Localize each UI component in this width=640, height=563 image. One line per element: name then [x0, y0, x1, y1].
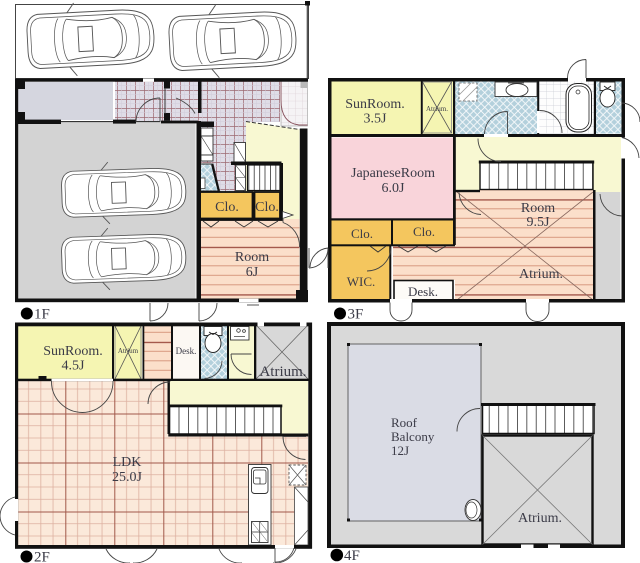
svg-text:Desk.: Desk. [176, 346, 197, 356]
svg-text:SunRoom.: SunRoom. [345, 97, 405, 112]
svg-text:4.5J: 4.5J [62, 359, 86, 374]
svg-text:1F: 1F [34, 307, 50, 323]
svg-text:WIC.: WIC. [347, 274, 376, 289]
svg-text:3F: 3F [348, 307, 364, 323]
svg-text:3.5J: 3.5J [364, 112, 388, 127]
svg-text:JapaneseRoom: JapaneseRoom [351, 166, 435, 181]
svg-text:Atrium.: Atrium. [259, 364, 306, 380]
svg-text:6J: 6J [246, 265, 259, 280]
svg-text:Atrium.: Atrium. [518, 511, 562, 526]
svg-text:Clo.: Clo. [413, 224, 435, 239]
svg-text:Atrium.: Atrium. [426, 105, 448, 113]
svg-text:Roof: Roof [391, 415, 418, 430]
svg-text:Room: Room [235, 250, 269, 265]
svg-text:Balcony: Balcony [391, 429, 435, 444]
svg-text:Clo.: Clo. [215, 200, 239, 215]
svg-text:9.5J: 9.5J [527, 215, 551, 230]
svg-text:Clo.: Clo. [351, 226, 373, 241]
svg-text:SunRoom.: SunRoom. [43, 344, 103, 359]
svg-text:Desk.: Desk. [408, 284, 438, 299]
svg-text:Clo.: Clo. [255, 200, 279, 215]
svg-text:Atrium: Atrium [118, 347, 139, 355]
svg-text:12J: 12J [391, 443, 409, 458]
svg-text:2F: 2F [34, 550, 50, 563]
svg-text:Room: Room [521, 201, 555, 216]
svg-text:25.0J: 25.0J [112, 470, 143, 485]
svg-text:4F: 4F [344, 548, 360, 563]
svg-text:6.0J: 6.0J [382, 181, 406, 196]
svg-text:Atrium.: Atrium. [519, 267, 563, 282]
svg-text:LDK: LDK [113, 455, 142, 470]
